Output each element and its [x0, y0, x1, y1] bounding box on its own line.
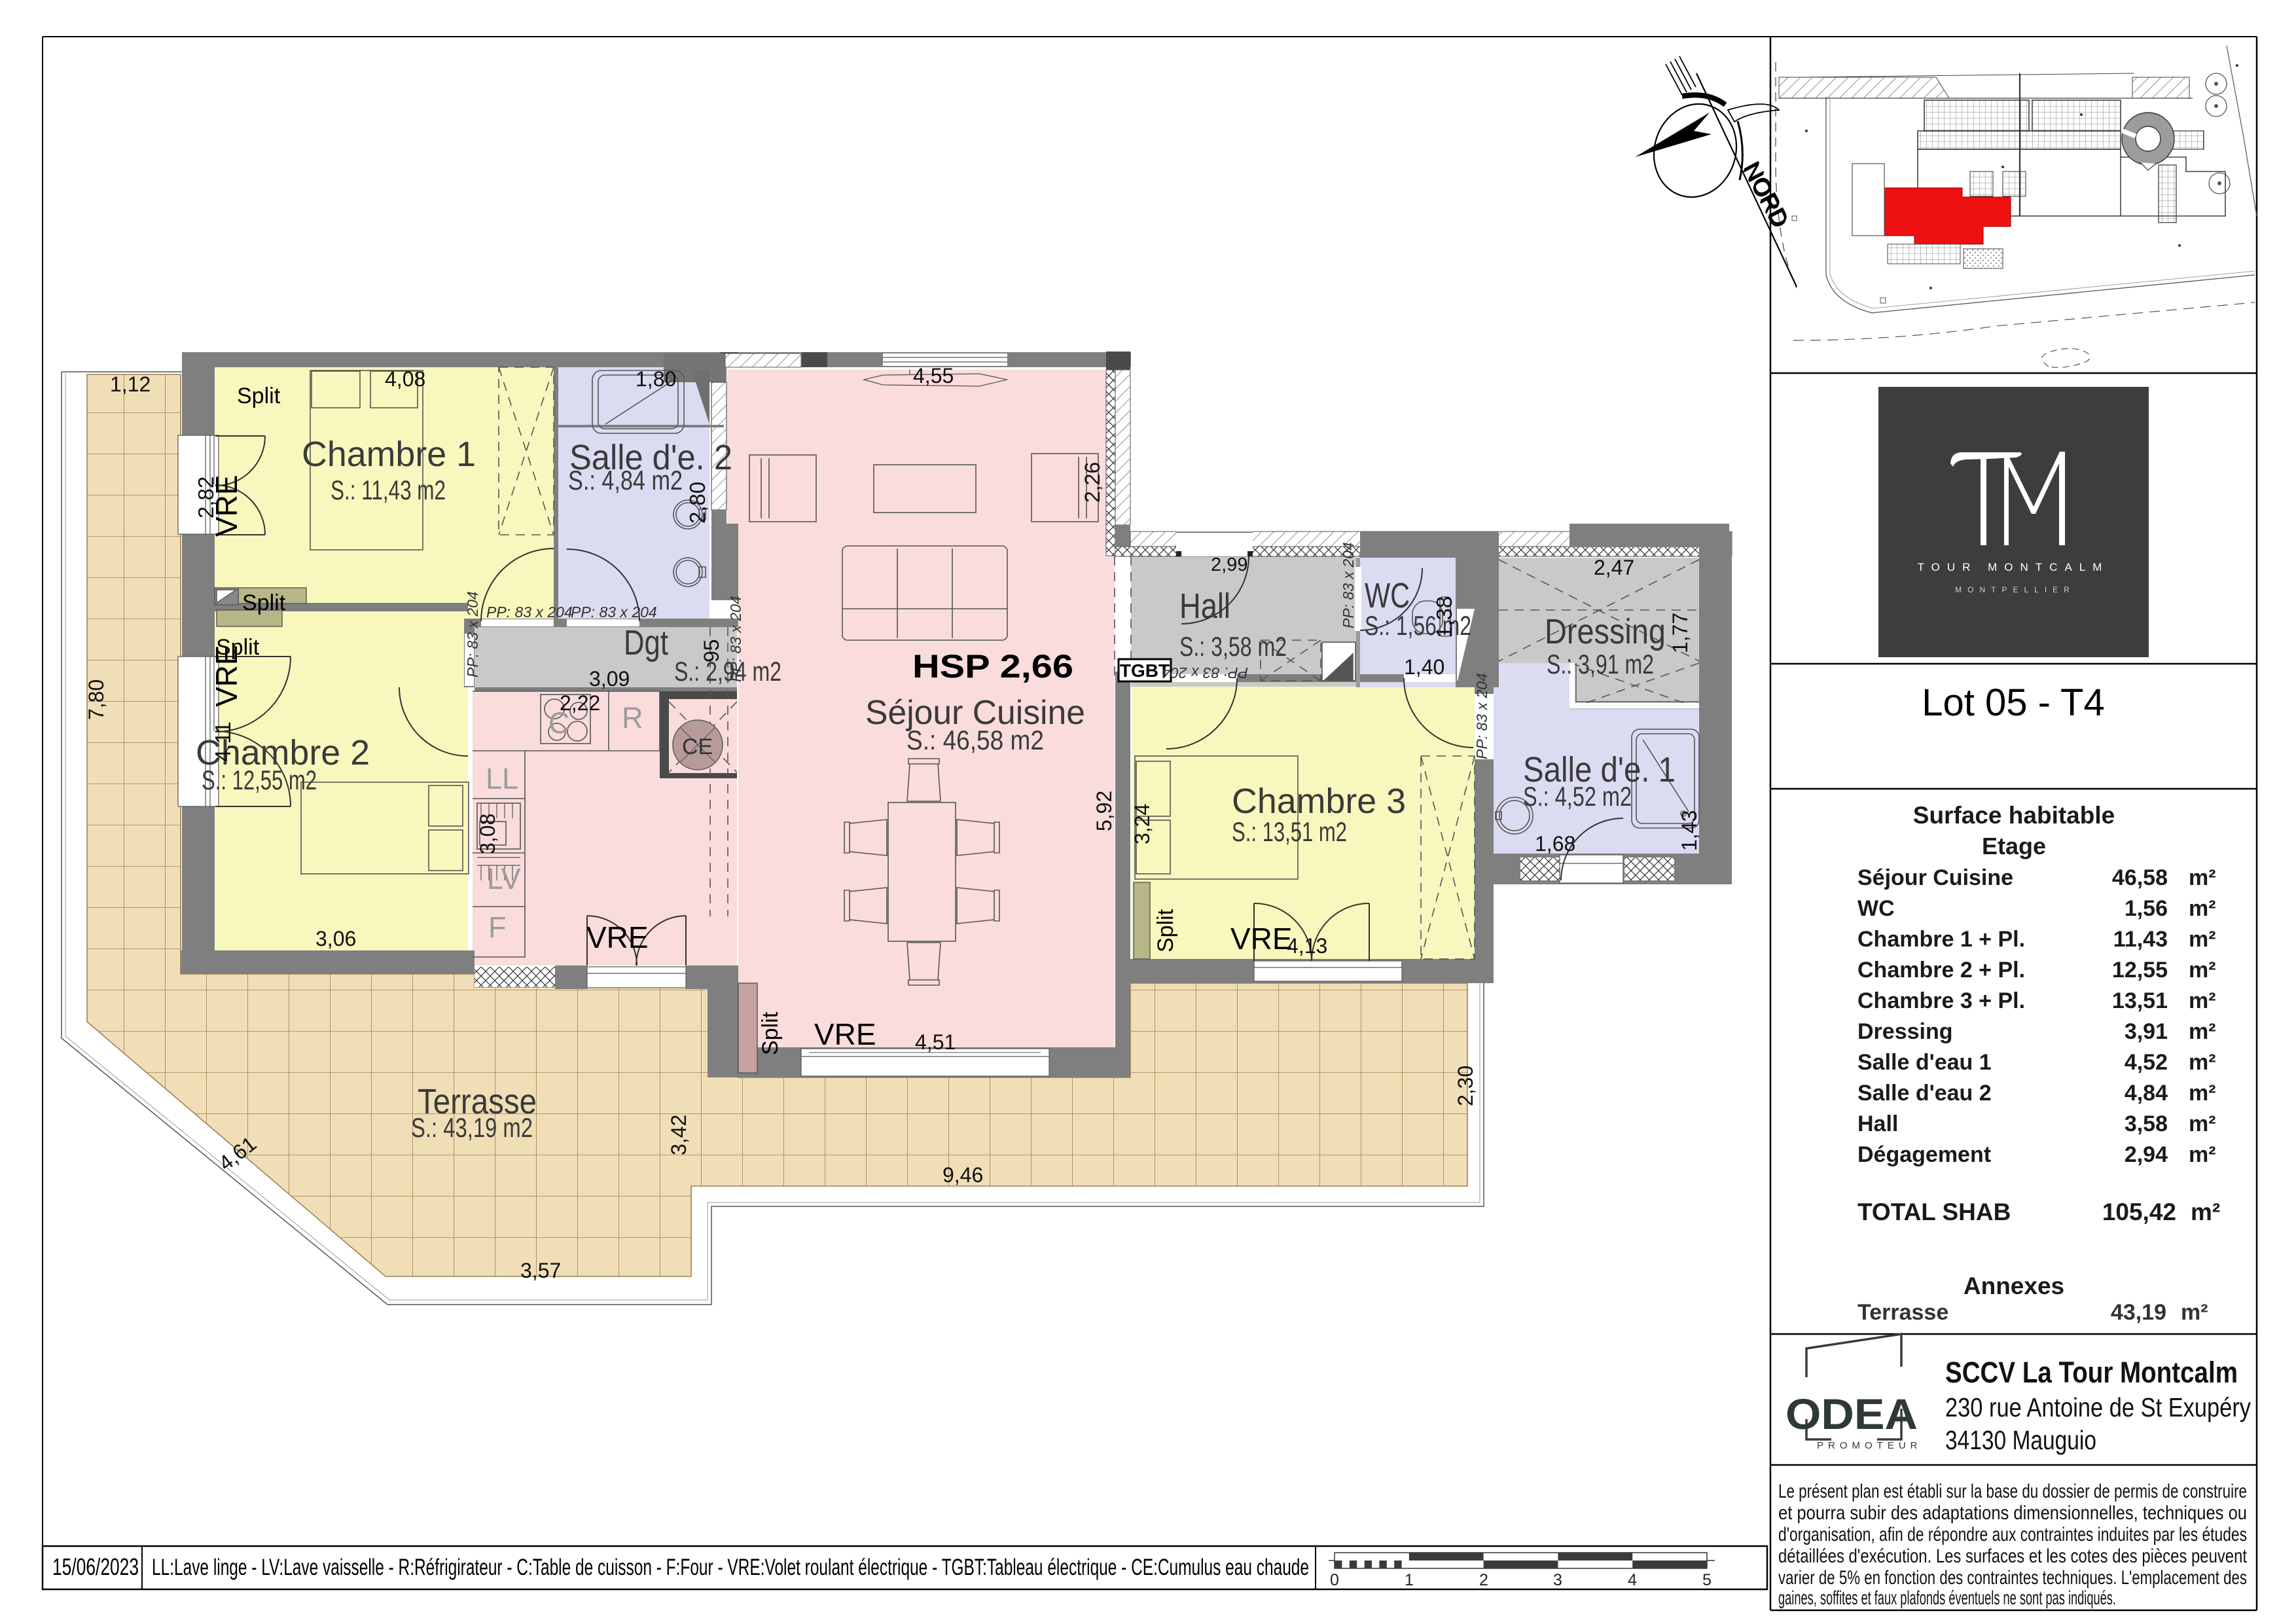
svg-text:3: 3 — [1553, 1571, 1562, 1589]
svg-text:VRE: VRE — [1230, 922, 1293, 956]
svg-text:4,08: 4,08 — [385, 367, 425, 391]
svg-text:et pourra subir des adaptation: et pourra subir des adaptations dimensio… — [1778, 1502, 2247, 1524]
svg-text:SCCV La Tour Montcalm: SCCV La Tour Montcalm — [1945, 1356, 2238, 1389]
svg-text:VRE: VRE — [209, 645, 243, 707]
svg-text:1,77: 1,77 — [1668, 613, 1692, 653]
svg-text:Split: Split — [242, 590, 286, 615]
svg-text:m²: m² — [2191, 1199, 2220, 1225]
svg-text:m²: m² — [2189, 865, 2216, 890]
svg-text:Split: Split — [758, 1011, 783, 1055]
svg-text:S.: 46,58 m2: S.: 46,58 m2 — [906, 725, 1044, 755]
svg-text:S.: 4,52 m2: S.: 4,52 m2 — [1523, 781, 1632, 812]
svg-text:0: 0 — [1330, 1571, 1339, 1589]
svg-text:1,43: 1,43 — [1677, 810, 1701, 851]
svg-text:PP: 83 x 204: PP: 83 x 204 — [1340, 542, 1357, 628]
svg-text:ODEA: ODEA — [1785, 1390, 1918, 1438]
svg-text:34130 Mauguio: 34130 Mauguio — [1945, 1425, 2096, 1455]
svg-text:PP: 83 x 204: PP: 83 x 204 — [727, 596, 744, 682]
svg-text:46,58: 46,58 — [2112, 865, 2168, 890]
svg-text:4,51: 4,51 — [915, 1030, 956, 1054]
svg-text:S.: 11,43 m2: S.: 11,43 m2 — [331, 475, 446, 505]
svg-text:3,91: 3,91 — [2125, 1019, 2168, 1044]
svg-text:Hall: Hall — [1857, 1111, 1898, 1136]
svg-text:S.: 12,55 m2: S.: 12,55 m2 — [202, 765, 317, 795]
svg-text:2,30: 2,30 — [1454, 1066, 1477, 1106]
svg-text:11,43: 11,43 — [2113, 927, 2168, 952]
svg-text:1,56: 1,56 — [2125, 896, 2168, 921]
svg-text:m²: m² — [2189, 1142, 2216, 1167]
svg-text:m²: m² — [2189, 958, 2216, 983]
svg-text:Chambre 1 + Pl.: Chambre 1 + Pl. — [1857, 927, 2025, 952]
svg-text:TOUR MONTCALM: TOUR MONTCALM — [1918, 561, 2109, 573]
svg-text:12,55: 12,55 — [2112, 958, 2168, 983]
svg-text:R: R — [622, 701, 643, 734]
svg-text:3,09: 3,09 — [589, 667, 630, 691]
svg-text:Dressing: Dressing — [1545, 612, 1666, 651]
svg-text:230 rue Antoine de St Exupéry: 230 rue Antoine de St Exupéry — [1945, 1392, 2251, 1422]
svg-text:4,84: 4,84 — [2125, 1081, 2168, 1106]
svg-text:S.: 13,51 m2: S.: 13,51 m2 — [1232, 816, 1347, 847]
svg-text:3,24: 3,24 — [1130, 804, 1154, 844]
svg-text:Annexes: Annexes — [1964, 1272, 2064, 1299]
svg-text:PROMOTEUR: PROMOTEUR — [1817, 1440, 1922, 1451]
svg-text:Le présent plan est établi sur: Le présent plan est établi sur la base d… — [1778, 1481, 2247, 1502]
svg-text:4,52: 4,52 — [2125, 1050, 2168, 1075]
svg-text:43,19: 43,19 — [2111, 1300, 2166, 1325]
svg-text:7,80: 7,80 — [84, 679, 108, 720]
svg-text:3,58: 3,58 — [2125, 1111, 2168, 1136]
svg-text:3,57: 3,57 — [520, 1259, 561, 1282]
svg-text:MONTPELLIER: MONTPELLIER — [1955, 585, 2075, 594]
svg-text:9,46: 9,46 — [942, 1163, 983, 1187]
svg-text:Séjour Cuisine: Séjour Cuisine — [1857, 865, 2013, 890]
svg-text:2: 2 — [1479, 1571, 1488, 1589]
svg-text:m²: m² — [2189, 988, 2216, 1013]
svg-text:3,08: 3,08 — [476, 814, 499, 854]
svg-text:TOTAL SHAB: TOTAL SHAB — [1857, 1199, 2011, 1225]
svg-text:15/06/2023: 15/06/2023 — [52, 1553, 139, 1580]
svg-text:F: F — [488, 911, 507, 944]
svg-text:3,06: 3,06 — [315, 927, 356, 950]
svg-text:m²: m² — [2189, 1019, 2216, 1044]
svg-text:CE: CE — [682, 734, 713, 759]
svg-text:1,68: 1,68 — [1535, 832, 1575, 856]
svg-text:PP: 83 x 204: PP: 83 x 204 — [486, 604, 573, 621]
svg-text:Etage: Etage — [1982, 833, 2046, 859]
svg-text:1,40: 1,40 — [1404, 655, 1444, 679]
svg-text:détaillées d'exécution. Les su: détaillées d'exécution. Les surfaces et … — [1778, 1545, 2247, 1567]
svg-text:2,80: 2,80 — [685, 482, 709, 524]
svg-text:m²: m² — [2189, 1081, 2216, 1106]
svg-text:VRE: VRE — [586, 920, 649, 954]
svg-text:5: 5 — [1702, 1571, 1712, 1589]
svg-text:4: 4 — [1628, 1571, 1637, 1589]
svg-text:m²: m² — [2189, 1111, 2216, 1136]
svg-text:95: 95 — [700, 639, 723, 662]
svg-text:Hall: Hall — [1179, 586, 1230, 626]
svg-text:2,22: 2,22 — [560, 691, 600, 715]
svg-text:PP: 83 x 204: PP: 83 x 204 — [1473, 673, 1490, 759]
svg-text:m²: m² — [2189, 1050, 2216, 1075]
svg-text:m²: m² — [2189, 896, 2216, 921]
svg-text:Terrasse: Terrasse — [1857, 1300, 1948, 1325]
svg-text:gaines, soffites et faux plafo: gaines, soffites et faux plafonds éventu… — [1778, 1587, 2116, 1609]
svg-text:HSP 2,66: HSP 2,66 — [912, 648, 1073, 685]
svg-text:m²: m² — [2181, 1300, 2208, 1325]
svg-text:LV: LV — [487, 862, 521, 895]
svg-text:d'organisation, afin de répond: d'organisation, afin de répondre aux con… — [1778, 1524, 2247, 1545]
svg-text:S.: 43,19 m2: S.: 43,19 m2 — [411, 1112, 533, 1143]
svg-text:S.: 3,58 m2: S.: 3,58 m2 — [1179, 631, 1287, 662]
svg-text:m²: m² — [2189, 927, 2216, 952]
svg-text:VRE: VRE — [814, 1017, 876, 1051]
svg-text:Chambre 2 + Pl.: Chambre 2 + Pl. — [1857, 958, 2025, 983]
svg-text:S.: 3,91 m2: S.: 3,91 m2 — [1547, 649, 1654, 679]
svg-text:4,13: 4,13 — [1287, 934, 1327, 958]
svg-text:2,47: 2,47 — [1594, 556, 1634, 579]
svg-text:Chambre 1: Chambre 1 — [302, 435, 476, 474]
svg-text:Chambre 3: Chambre 3 — [1232, 782, 1406, 821]
svg-text:Dressing: Dressing — [1857, 1019, 1953, 1044]
svg-text:Split: Split — [237, 384, 281, 408]
svg-text:5,92: 5,92 — [1092, 791, 1116, 831]
svg-text:LL: LL — [486, 762, 518, 795]
svg-text:1: 1 — [1405, 1571, 1414, 1589]
svg-text:105,42: 105,42 — [2102, 1199, 2176, 1225]
svg-text:Dgt: Dgt — [624, 623, 668, 662]
svg-text:PP: 83 x 204: PP: 83 x 204 — [571, 604, 657, 621]
svg-text:4,11: 4,11 — [211, 721, 235, 762]
svg-text:S.: 4,84 m2: S.: 4,84 m2 — [568, 465, 683, 496]
svg-text:LL:Lave linge - LV:Lave vaisse: LL:Lave linge - LV:Lave vaisselle - R:Ré… — [152, 1555, 1309, 1580]
svg-text:13,51: 13,51 — [2112, 988, 2168, 1013]
svg-text:PP: 83 x 204: PP: 83 x 204 — [464, 591, 481, 677]
svg-text:WC: WC — [1365, 576, 1410, 615]
svg-text:Salle d'eau 2: Salle d'eau 2 — [1857, 1081, 1992, 1106]
svg-text:Lot 05 - T4: Lot 05 - T4 — [1922, 681, 2104, 724]
svg-text:varier de 5% en fonction des c: varier de 5% en fonction des contraintes… — [1778, 1567, 2247, 1589]
svg-text:Chambre 3 + Pl.: Chambre 3 + Pl. — [1857, 988, 2025, 1013]
svg-text:2,99: 2,99 — [1211, 554, 1247, 575]
svg-text:1,38: 1,38 — [1432, 596, 1456, 638]
svg-text:Split: Split — [1153, 909, 1178, 952]
svg-text:4,55: 4,55 — [913, 364, 954, 388]
svg-text:2,94: 2,94 — [2125, 1142, 2168, 1167]
svg-text:2,82: 2,82 — [194, 477, 218, 518]
svg-text:WC: WC — [1857, 896, 1895, 921]
svg-text:Dégagement: Dégagement — [1857, 1142, 1991, 1167]
svg-text:Salle d'eau 1: Salle d'eau 1 — [1857, 1050, 1992, 1075]
svg-text:2,26: 2,26 — [1081, 462, 1104, 503]
svg-text:1,12: 1,12 — [110, 372, 151, 396]
svg-text:PP: 83 x 204: PP: 83 x 204 — [1162, 664, 1248, 681]
svg-text:Surface habitable: Surface habitable — [1913, 802, 2115, 829]
svg-text:1,80: 1,80 — [636, 367, 676, 391]
svg-text:3,42: 3,42 — [667, 1115, 691, 1155]
